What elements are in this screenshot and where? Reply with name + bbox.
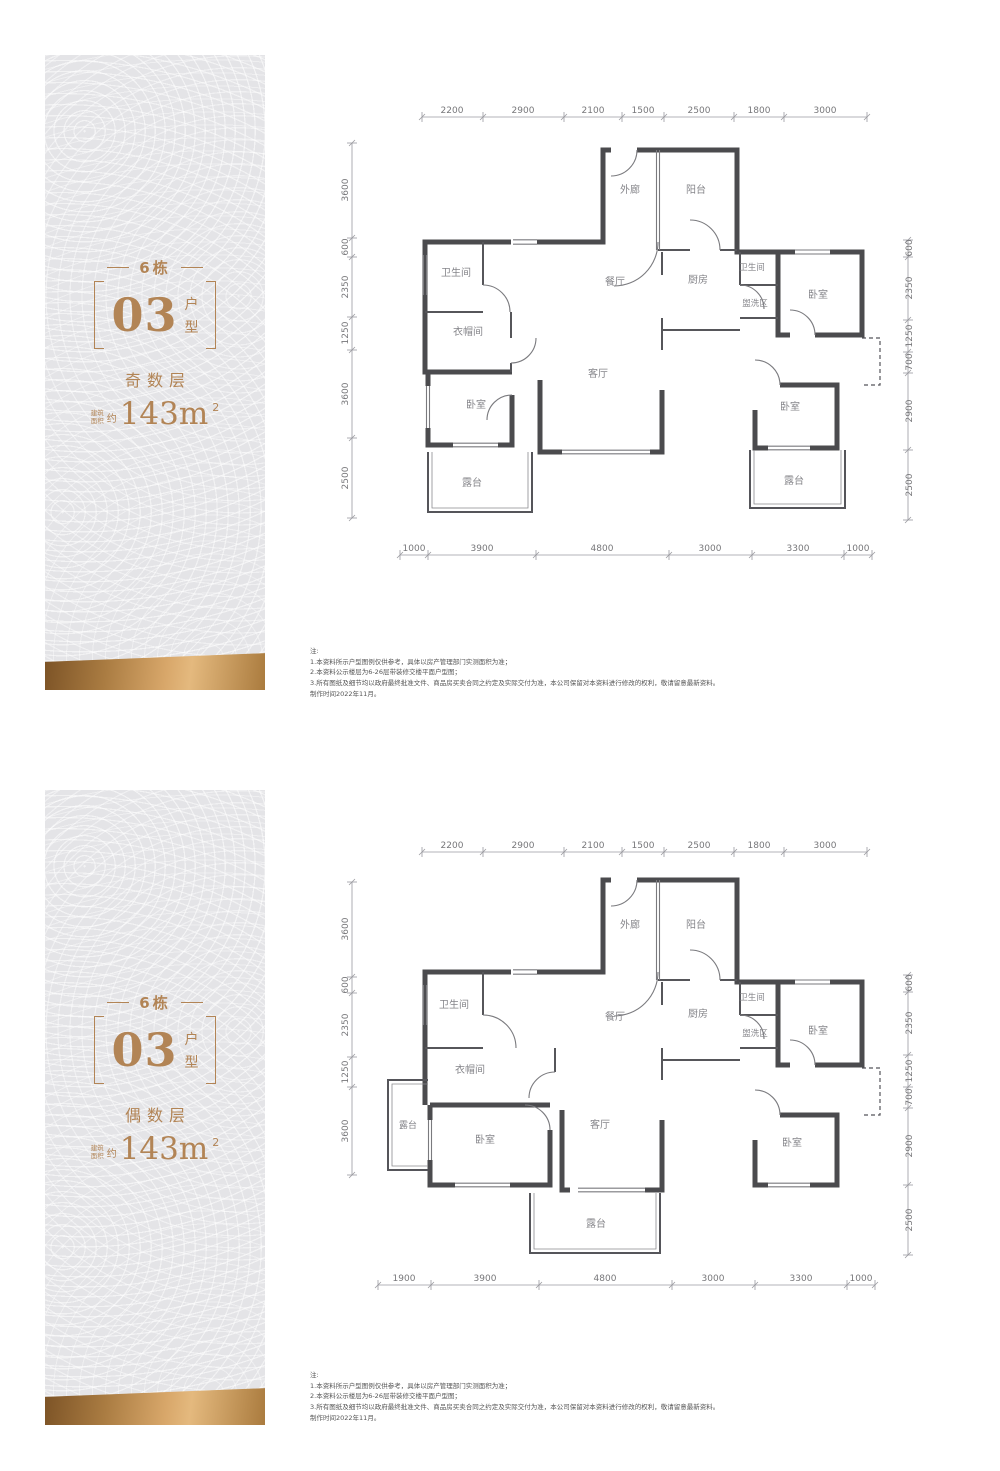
unit-suffix-2: 型 xyxy=(185,321,199,335)
dash-left xyxy=(107,1002,129,1003)
dim-label: 2500 xyxy=(341,466,351,489)
area-prefix-1: 建筑 xyxy=(91,409,104,417)
area-exponent: 2 xyxy=(212,401,219,430)
dim-label: 3000 xyxy=(814,841,837,851)
floorplan-odd: 2200 2900 2100 1500 2500 1800 3000 1000 … xyxy=(300,80,970,590)
building-label: 6栋 xyxy=(45,257,265,278)
bay-window-dashed xyxy=(862,1068,880,1115)
room-label: 盥洗区 xyxy=(742,1028,768,1039)
dim-label: 3600 xyxy=(341,178,351,201)
dim-label: 1250 xyxy=(341,321,351,344)
dim-label: 3000 xyxy=(702,1274,725,1284)
notes-line: 1.本资料所示户型图例仅供参考，具体以房产管理部门实测面积为准； xyxy=(310,1381,950,1392)
area-prefix-2: 面积 xyxy=(91,1152,104,1160)
notes-line: 制作时间2022年11月。 xyxy=(310,689,950,700)
dim-label: 3600 xyxy=(341,1119,351,1142)
area-block: 建筑 面积 约 143m 2 xyxy=(45,1134,265,1165)
bracket-right-icon xyxy=(206,281,216,349)
unit-number: 03 xyxy=(111,292,177,338)
room-label: 衣帽间 xyxy=(453,325,483,338)
dash-left xyxy=(107,267,129,268)
bay-window-dashed xyxy=(862,338,880,385)
room-label: 卧室 xyxy=(808,288,828,301)
room-label: 餐厅 xyxy=(605,1010,625,1023)
notes-line: 3.所有图纸及细节均以政府最终批准文件、商品房买卖合同之约定及实际交付为准，本公… xyxy=(310,678,950,689)
building-label: 6栋 xyxy=(45,992,265,1013)
area-exponent: 2 xyxy=(212,1136,219,1165)
dim-label: 1000 xyxy=(847,544,870,554)
room-label: 卫生间 xyxy=(441,266,471,279)
dim-label: 2350 xyxy=(905,276,915,299)
room-label: 卧室 xyxy=(475,1133,495,1146)
area-value: 143m xyxy=(120,399,209,430)
area-prefix-1: 建筑 xyxy=(91,1144,104,1152)
dash-right xyxy=(181,1002,203,1003)
unit-suffix-1: 户 xyxy=(185,298,199,312)
dim-label: 600 xyxy=(341,976,351,993)
gold-band xyxy=(45,652,265,690)
dim-label: 2500 xyxy=(905,473,915,496)
floorplan-sheet: 6栋 03 户 型 奇数层 建筑 面积 约 143m 2 xyxy=(0,0,1000,1471)
dim-label: 3600 xyxy=(341,382,351,405)
notes-title: 注: xyxy=(310,1370,950,1381)
area-value: 143m xyxy=(120,1134,209,1165)
bracket-right-icon xyxy=(206,1016,216,1084)
walls-partition xyxy=(425,972,778,1080)
dim-label: 4800 xyxy=(594,1274,617,1284)
room-label: 外廊 xyxy=(620,183,640,196)
room-label: 厨房 xyxy=(688,273,708,286)
room-label: 外廊 xyxy=(620,918,640,931)
dim-label: 2900 xyxy=(905,1134,915,1157)
dim-label: 2900 xyxy=(905,399,915,422)
room-label: 盥洗区 xyxy=(742,298,768,309)
unit-card-even: 6栋 03 户 型 偶数层 建筑 面积 约 143m 2 xyxy=(45,790,265,1425)
notes-line: 3.所有图纸及细节均以政府最终批准文件、商品房买卖合同之约定及实际交付为准，本公… xyxy=(310,1402,950,1413)
gold-band xyxy=(45,1387,265,1425)
floorplan-even: 2200 2900 2100 1500 2500 1800 3000 1900 … xyxy=(300,810,970,1320)
bracket-left-icon xyxy=(94,281,104,349)
dim-label: 2100 xyxy=(582,106,605,116)
dim-label: 1250 xyxy=(341,1060,351,1083)
room-label: 卧室 xyxy=(466,398,486,411)
notes-line: 制作时间2022年11月。 xyxy=(310,1413,950,1424)
disclaimer-notes: 注: 1.本资料所示户型图例仅供参考，具体以房产管理部门实测面积为准； 2.本资… xyxy=(310,646,950,700)
disclaimer-notes: 注: 1.本资料所示户型图例仅供参考，具体以房产管理部门实测面积为准； 2.本资… xyxy=(310,1370,950,1424)
area-prefix-2: 面积 xyxy=(91,417,104,425)
dim-label: 3900 xyxy=(474,1274,497,1284)
area-prefix: 建筑 面积 xyxy=(91,409,104,430)
building-name: 6栋 xyxy=(139,257,170,278)
dim-label: 2350 xyxy=(341,275,351,298)
room-label: 露台 xyxy=(399,1119,417,1131)
room-label: 卧室 xyxy=(780,400,800,413)
door-arcs xyxy=(483,880,815,1130)
dim-label: 1800 xyxy=(748,841,771,851)
room-label: 阳台 xyxy=(686,183,706,196)
notes-line: 2.本资料公示楼层为6-26层带装修交楼平面户型图； xyxy=(310,1391,950,1402)
dim-label: 3600 xyxy=(341,917,351,940)
unit-number-block: 03 户 型 xyxy=(45,1016,265,1084)
unit-suffix: 户 型 xyxy=(185,296,199,335)
dim-label: 4800 xyxy=(591,544,614,554)
dim-label: 3000 xyxy=(814,106,837,116)
room-label: 客厅 xyxy=(588,367,608,380)
dim-label: 2350 xyxy=(341,1013,351,1036)
unit-card-odd: 6栋 03 户 型 奇数层 建筑 面积 约 143m 2 xyxy=(45,55,265,690)
dim-label: 600 xyxy=(905,974,915,991)
room-label: 卧室 xyxy=(782,1136,802,1149)
floor-parity-label: 偶数层 xyxy=(45,1102,265,1126)
dim-label: 600 xyxy=(905,239,915,256)
dash-right xyxy=(181,267,203,268)
walls-partition xyxy=(425,242,778,372)
dim-label: 1800 xyxy=(748,106,771,116)
dim-label: 700 xyxy=(905,1088,915,1105)
dim-label: 3300 xyxy=(790,1274,813,1284)
area-block: 建筑 面积 约 143m 2 xyxy=(45,399,265,430)
building-name: 6栋 xyxy=(139,992,170,1013)
unit-suffix: 户 型 xyxy=(185,1031,199,1070)
room-label: 卫生间 xyxy=(739,992,765,1003)
area-approx: 约 xyxy=(107,410,117,430)
notes-line: 2.本资料公示楼层为6-26层带装修交楼平面户型图； xyxy=(310,667,950,678)
terrace-railings xyxy=(428,450,845,512)
room-label: 阳台 xyxy=(686,918,706,931)
dim-label: 2200 xyxy=(441,106,464,116)
dim-label: 2500 xyxy=(905,1208,915,1231)
dim-label: 600 xyxy=(341,238,351,255)
room-label: 客厅 xyxy=(590,1118,610,1131)
dim-label: 2900 xyxy=(512,106,535,116)
unit-number-block: 03 户 型 xyxy=(45,281,265,349)
dim-label: 3000 xyxy=(699,544,722,554)
room-label: 厨房 xyxy=(688,1007,708,1020)
unit-suffix-1: 户 xyxy=(185,1033,199,1047)
area-approx: 约 xyxy=(107,1145,117,1165)
room-label: 露台 xyxy=(462,476,482,489)
dim-label: 2100 xyxy=(582,841,605,851)
dim-label: 2200 xyxy=(441,841,464,851)
room-label: 露台 xyxy=(784,474,804,487)
dim-label: 2500 xyxy=(688,841,711,851)
dim-label: 1250 xyxy=(905,1059,915,1082)
notes-line: 1.本资料所示户型图例仅供参考，具体以房产管理部门实测面积为准； xyxy=(310,657,950,668)
notes-title: 注: xyxy=(310,646,950,657)
room-label: 衣帽间 xyxy=(455,1063,485,1076)
room-label: 卫生间 xyxy=(439,998,469,1011)
dim-label: 2500 xyxy=(688,106,711,116)
dim-label: 1250 xyxy=(905,324,915,347)
dim-label: 3300 xyxy=(787,544,810,554)
dim-label: 3900 xyxy=(471,544,494,554)
room-label: 卫生间 xyxy=(739,262,765,273)
floor-parity-label: 奇数层 xyxy=(45,367,265,391)
unit-number: 03 xyxy=(111,1027,177,1073)
unit-suffix-2: 型 xyxy=(185,1056,199,1070)
dim-label: 1000 xyxy=(403,544,426,554)
dim-label: 1500 xyxy=(632,106,655,116)
room-label: 露台 xyxy=(586,1217,606,1230)
area-prefix: 建筑 面积 xyxy=(91,1144,104,1165)
room-label: 餐厅 xyxy=(605,275,625,288)
dim-label: 2350 xyxy=(905,1011,915,1034)
dim-label: 700 xyxy=(905,353,915,370)
dim-label: 1500 xyxy=(632,841,655,851)
dim-label: 1000 xyxy=(850,1274,873,1284)
dim-label: 1900 xyxy=(393,1274,416,1284)
dim-label: 2900 xyxy=(512,841,535,851)
bracket-left-icon xyxy=(94,1016,104,1084)
room-label: 卧室 xyxy=(808,1024,828,1037)
